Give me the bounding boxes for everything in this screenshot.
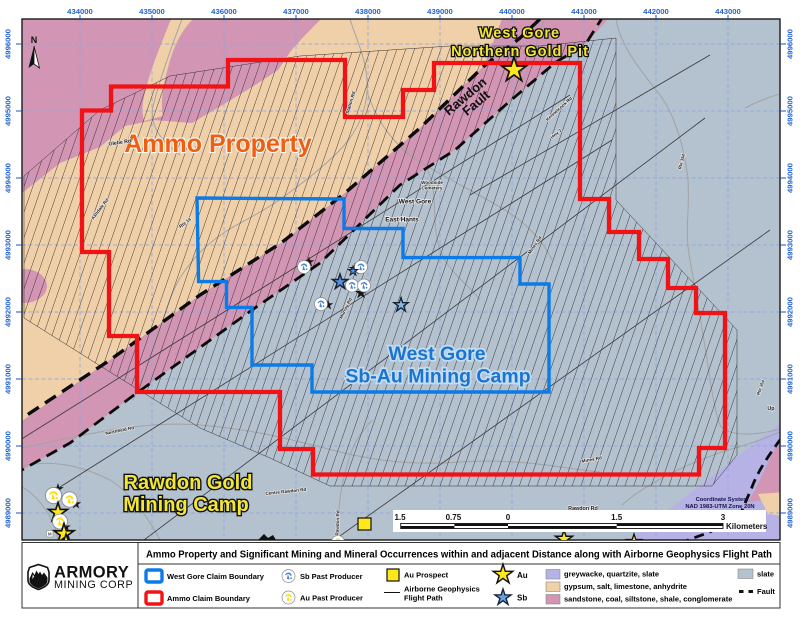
svg-text:Mining Camp: Mining Camp [123, 494, 249, 516]
svg-text:442000: 442000 [643, 7, 669, 16]
svg-text:438000: 438000 [355, 7, 381, 16]
svg-text:West Gore: West Gore [479, 26, 560, 42]
svg-text:4996000: 4996000 [786, 29, 795, 59]
svg-text:Kilometers: Kilometers [726, 522, 768, 531]
svg-text:4990000: 4990000 [4, 431, 13, 461]
svg-text:West Gore: West Gore [388, 343, 485, 365]
svg-text:Au Prospect: Au Prospect [404, 571, 449, 580]
svg-text:Sb Past Producer: Sb Past Producer [300, 572, 363, 581]
svg-text:437000: 437000 [283, 7, 309, 16]
svg-text:3: 3 [721, 513, 726, 522]
svg-text:4991000: 4991000 [786, 364, 795, 394]
svg-text:434000: 434000 [67, 7, 93, 16]
svg-text:Au: Au [517, 571, 528, 580]
svg-text:East Hants: East Hants [385, 217, 419, 224]
svg-text:Rawdon Gold: Rawdon Gold [124, 472, 253, 494]
svg-text:4989000: 4989000 [786, 498, 795, 528]
svg-text:Sb: Sb [517, 594, 527, 603]
svg-text:4994000: 4994000 [786, 163, 795, 193]
svg-text:4996000: 4996000 [4, 29, 13, 59]
svg-text:0.75: 0.75 [446, 513, 462, 522]
svg-text:Airborne Geophysics: Airborne Geophysics [404, 585, 480, 594]
svg-text:4992000: 4992000 [4, 297, 13, 327]
svg-text:1.5: 1.5 [611, 513, 623, 522]
svg-text:4989000: 4989000 [4, 498, 13, 528]
svg-text:440000: 440000 [499, 7, 525, 16]
svg-text:N: N [31, 35, 38, 45]
svg-text:Flight Path: Flight Path [404, 594, 443, 603]
svg-text:1.5: 1.5 [394, 513, 406, 522]
svg-text:4993000: 4993000 [4, 230, 13, 260]
svg-text:Rawdon Rd: Rawdon Rd [335, 510, 341, 536]
svg-text:slate: slate [757, 570, 774, 579]
svg-text:Up: Up [767, 406, 775, 412]
svg-text:4993000: 4993000 [786, 230, 795, 260]
svg-text:4992000: 4992000 [786, 297, 795, 327]
svg-text:4991000: 4991000 [4, 364, 13, 394]
svg-text:Woodside: Woodside [421, 180, 443, 185]
svg-text:Northern Gold Pit: Northern Gold Pit [451, 44, 589, 60]
svg-text:gypsum, salt, limestone, anhyd: gypsum, salt, limestone, anhydrite [564, 582, 687, 591]
svg-text:0: 0 [506, 513, 511, 522]
svg-text:Fault: Fault [757, 587, 775, 596]
svg-text:4995000: 4995000 [786, 96, 795, 126]
svg-text:West Gore Claim Boundary: West Gore Claim Boundary [167, 572, 265, 581]
svg-text:sandstone, coal, siltstone, sh: sandstone, coal, siltstone, shale, congl… [564, 595, 732, 604]
svg-text:Ammo Claim Boundary: Ammo Claim Boundary [167, 594, 251, 603]
svg-text:Cemetery: Cemetery [422, 186, 443, 191]
svg-text:Ammo Property: Ammo Property [124, 130, 312, 158]
svg-text:443000: 443000 [715, 7, 741, 16]
svg-text:NAD 1983-UTM Zone 20N: NAD 1983-UTM Zone 20N [685, 504, 754, 510]
svg-text:West Gore: West Gore [399, 199, 432, 206]
svg-text:MINING CORP: MINING CORP [54, 579, 133, 591]
svg-text:4994000: 4994000 [4, 163, 13, 193]
svg-text:Ammo Property and Significant: Ammo Property and Significant Mining and… [146, 549, 772, 561]
svg-text:4995000: 4995000 [4, 96, 13, 126]
svg-text:greywacke, quartzite, slate: greywacke, quartzite, slate [564, 570, 659, 579]
svg-text:Au Past Producer: Au Past Producer [300, 594, 363, 603]
svg-text:Sb-Au Mining Camp: Sb-Au Mining Camp [345, 366, 530, 388]
svg-text:436000: 436000 [211, 7, 237, 16]
svg-text:441000: 441000 [571, 7, 597, 16]
svg-text:M: M [48, 532, 52, 537]
svg-text:435000: 435000 [139, 7, 165, 16]
svg-text:439000: 439000 [427, 7, 453, 16]
svg-text:4990000: 4990000 [786, 431, 795, 461]
svg-text:Coordinate System: Coordinate System [696, 497, 749, 503]
